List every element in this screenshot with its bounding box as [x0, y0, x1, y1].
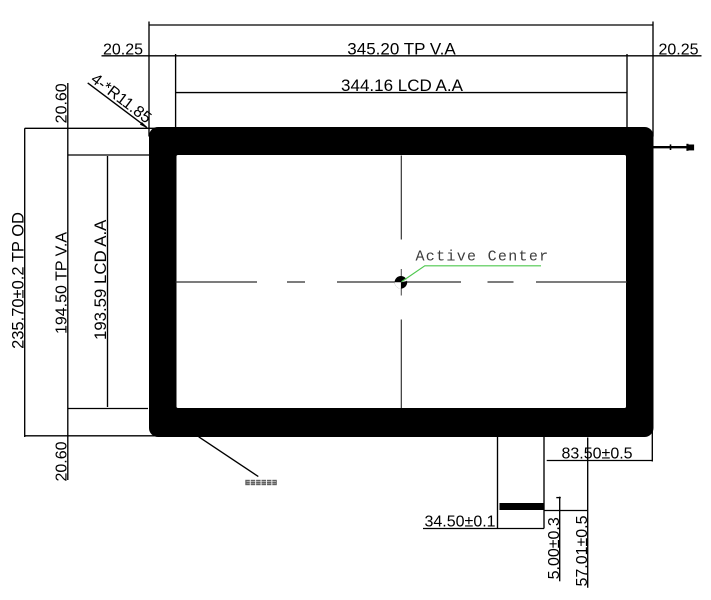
- svg-text:Active Center: Active Center: [416, 249, 550, 266]
- svg-text:344.16 LCD A.A: 344.16 LCD A.A: [341, 76, 464, 95]
- svg-text:20.25: 20.25: [659, 41, 699, 58]
- svg-text:5.00±0.3: 5.00±0.3: [546, 517, 563, 579]
- svg-text:4-*R11.85: 4-*R11.85: [87, 71, 154, 127]
- svg-text:20.60: 20.60: [53, 83, 70, 123]
- svg-text:34.50±0.1: 34.50±0.1: [425, 513, 496, 530]
- svg-text:345.20 TP V.A: 345.20 TP V.A: [347, 39, 456, 58]
- svg-text:57.01±0.5: 57.01±0.5: [574, 515, 591, 586]
- svg-text:194.50 TP V.A: 194.50 TP V.A: [53, 232, 70, 334]
- svg-text:235.70±0.2 TP OD: 235.70±0.2 TP OD: [9, 212, 27, 349]
- svg-text:83.50±0.5: 83.50±0.5: [562, 445, 633, 462]
- svg-text:20.25: 20.25: [103, 41, 143, 58]
- svg-text:193.59 LCD A.A: 193.59 LCD A.A: [91, 219, 110, 340]
- svg-text:20.60: 20.60: [53, 441, 70, 481]
